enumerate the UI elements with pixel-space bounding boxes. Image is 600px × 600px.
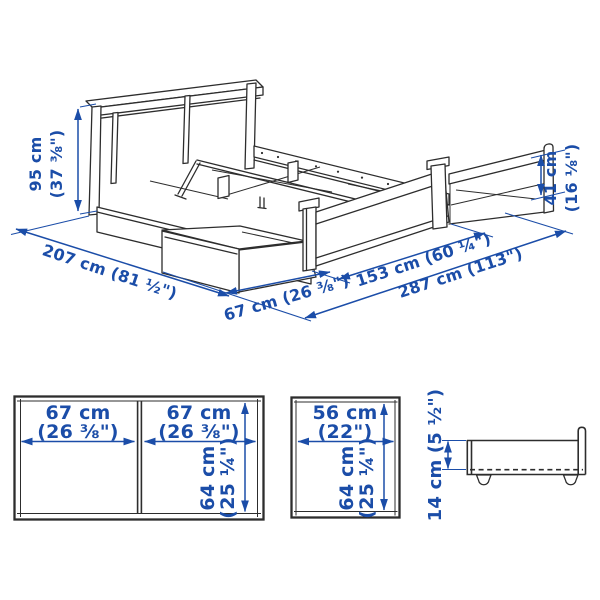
footboard-height-label-2: (16 ⅛")	[562, 144, 581, 213]
double-box-divider	[138, 401, 142, 514]
double-box-height-label-1: 64 cm	[197, 445, 219, 510]
single-box-height-label-1: 64 cm	[336, 445, 358, 510]
far-box-bottom-edge	[449, 211, 553, 224]
headboard-height-label-1: 95 cm	[26, 137, 45, 192]
dim-extension	[505, 213, 573, 234]
bed-length-label: 207 cm (81 ½")	[40, 240, 180, 303]
single-box-height-label-2: (25 ¼")	[356, 437, 378, 518]
double-box-front-view: 67 cm (26 ⅜") 67 cm (26 ⅜") 64 cm (25 ¼"…	[15, 397, 264, 520]
box-side-view: 14 cm (5 ½")	[425, 389, 586, 522]
divider-panel-2	[288, 161, 298, 183]
midbeam-support-leg	[175, 161, 200, 199]
midbeam-leg	[258, 197, 266, 209]
side-view-height-label: 14 cm (5 ½")	[425, 389, 446, 522]
headboard-height-label-2: (37 ⅜")	[47, 130, 66, 199]
footboard-far-post	[431, 164, 447, 229]
single-box-front-view: 56 cm (22") 64 cm (25 ¼")	[292, 398, 400, 519]
headboard-stud-a	[111, 113, 118, 184]
castor-right	[564, 475, 579, 485]
far-box-interior-line	[456, 190, 536, 199]
side-view-front-lip	[578, 427, 585, 474]
dim-headboard-height: 95 cm (37 ⅜")	[26, 104, 97, 214]
far-box-near-wall	[449, 150, 546, 184]
headboard-stud-b	[183, 96, 190, 164]
headboard-left-post	[89, 106, 101, 215]
divider-panel-1	[218, 176, 229, 199]
diagram-canvas: 95 cm (37 ⅜") 207 cm (81 ½") 67 cm (26 ⅜…	[0, 0, 600, 600]
far-box-floor-edge	[451, 183, 547, 205]
dimension-diagram: 95 cm (37 ⅜") 207 cm (81 ½") 67 cm (26 ⅜…	[0, 0, 600, 600]
castor-left	[477, 475, 492, 485]
footboard-height-label-1: 41 cm	[541, 151, 560, 206]
double-box-height-label-2: (25 ¼")	[217, 437, 239, 518]
cross-brace-2	[220, 167, 320, 197]
left-box-width-label-2: (26 ⅜")	[37, 421, 118, 443]
corner-post-body	[303, 207, 316, 271]
